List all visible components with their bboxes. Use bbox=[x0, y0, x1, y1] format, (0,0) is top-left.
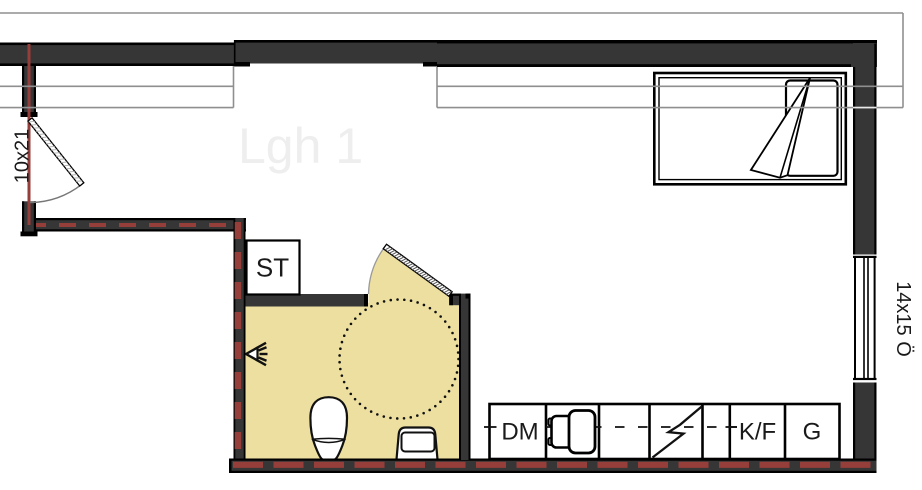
svg-text:DM: DM bbox=[501, 419, 538, 446]
svg-text:14x15 Ö: 14x15 Ö bbox=[892, 281, 914, 357]
svg-text:G: G bbox=[803, 419, 822, 446]
svg-text:10x21: 10x21 bbox=[12, 129, 34, 184]
svg-text:ST: ST bbox=[256, 253, 289, 283]
svg-text:Lgh 1: Lgh 1 bbox=[238, 118, 363, 174]
svg-text:K/F: K/F bbox=[739, 419, 776, 446]
